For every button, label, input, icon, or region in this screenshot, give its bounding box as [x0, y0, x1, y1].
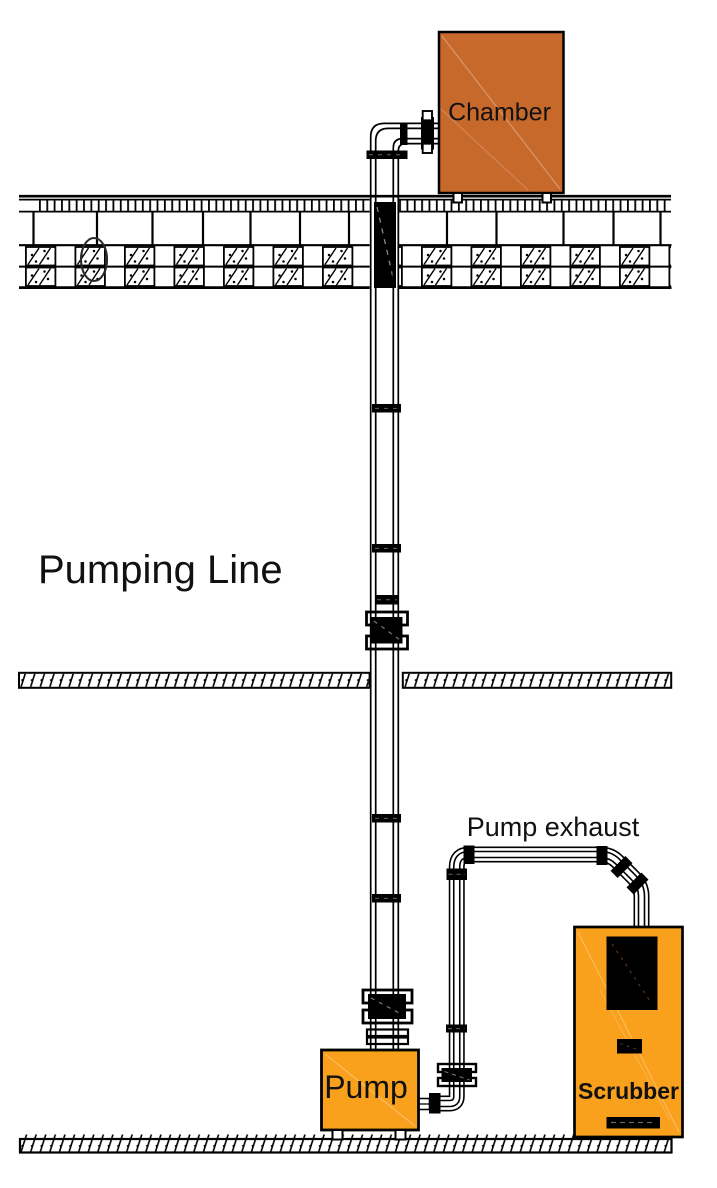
floor-posts	[34, 212, 661, 245]
chamber-leg	[454, 193, 463, 203]
pump-outlet-port	[429, 1093, 441, 1114]
floor-block-row-1	[19, 246, 671, 267]
mezzanine-hatch-right	[404, 674, 670, 687]
scrubber: Scrubber	[575, 927, 683, 1137]
mezzanine-floor	[19, 673, 671, 688]
bellows-lower	[363, 990, 412, 1023]
pump-label: Pump	[324, 1069, 408, 1105]
pump-leg	[333, 1130, 343, 1140]
pump: Pump	[322, 1050, 419, 1140]
chamber: Chamber	[439, 32, 564, 203]
schematic-canvas: Chamber	[0, 0, 717, 1188]
upper-floor	[19, 200, 672, 288]
pipe-clamp	[400, 123, 408, 145]
scrubber-label: Scrubber	[578, 1078, 679, 1104]
chamber-leg	[543, 193, 552, 203]
mezzanine-hatch-left	[20, 674, 369, 687]
flange-plate	[367, 1038, 408, 1045]
pump-exhaust-label: Pump exhaust	[467, 812, 640, 842]
bellows-body	[442, 1068, 473, 1082]
scrubber-screen	[607, 937, 658, 1011]
pump-inlet-flange-pair	[367, 1030, 408, 1045]
deck-ticks	[39, 200, 669, 211]
exhaust-clamp	[597, 846, 608, 865]
bellows-mid	[367, 612, 408, 649]
pumping-line-label: Pumping Line	[38, 548, 283, 592]
exhaust-clamp	[464, 846, 475, 865]
floor-block-row-2	[19, 267, 671, 288]
bellows-body	[372, 617, 403, 644]
flange-bolt	[423, 111, 432, 120]
pump-leg	[396, 1130, 406, 1140]
chamber-label: Chamber	[448, 99, 551, 127]
flange-bolt	[423, 144, 432, 153]
flange-plate	[367, 1030, 408, 1037]
ground-hatch	[21, 1135, 671, 1153]
